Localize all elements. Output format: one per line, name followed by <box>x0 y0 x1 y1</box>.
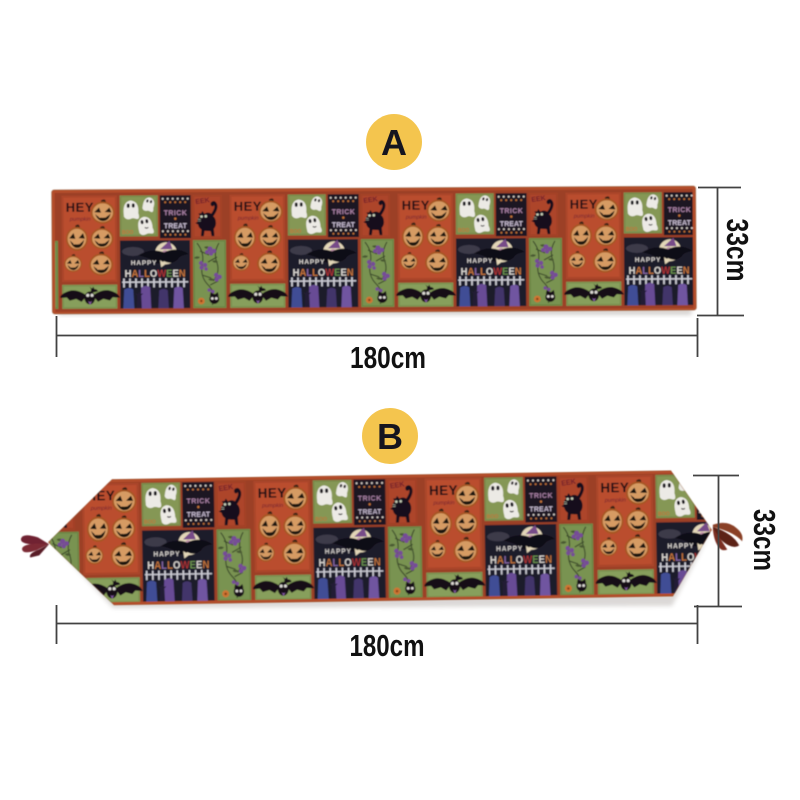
svg-text:180cm: 180cm <box>350 628 425 663</box>
svg-text:A: A <box>381 122 407 163</box>
svg-text:180cm: 180cm <box>350 340 426 375</box>
svg-text:33cm: 33cm <box>720 219 755 282</box>
svg-text:B: B <box>377 416 403 457</box>
svg-text:33cm: 33cm <box>747 509 782 571</box>
